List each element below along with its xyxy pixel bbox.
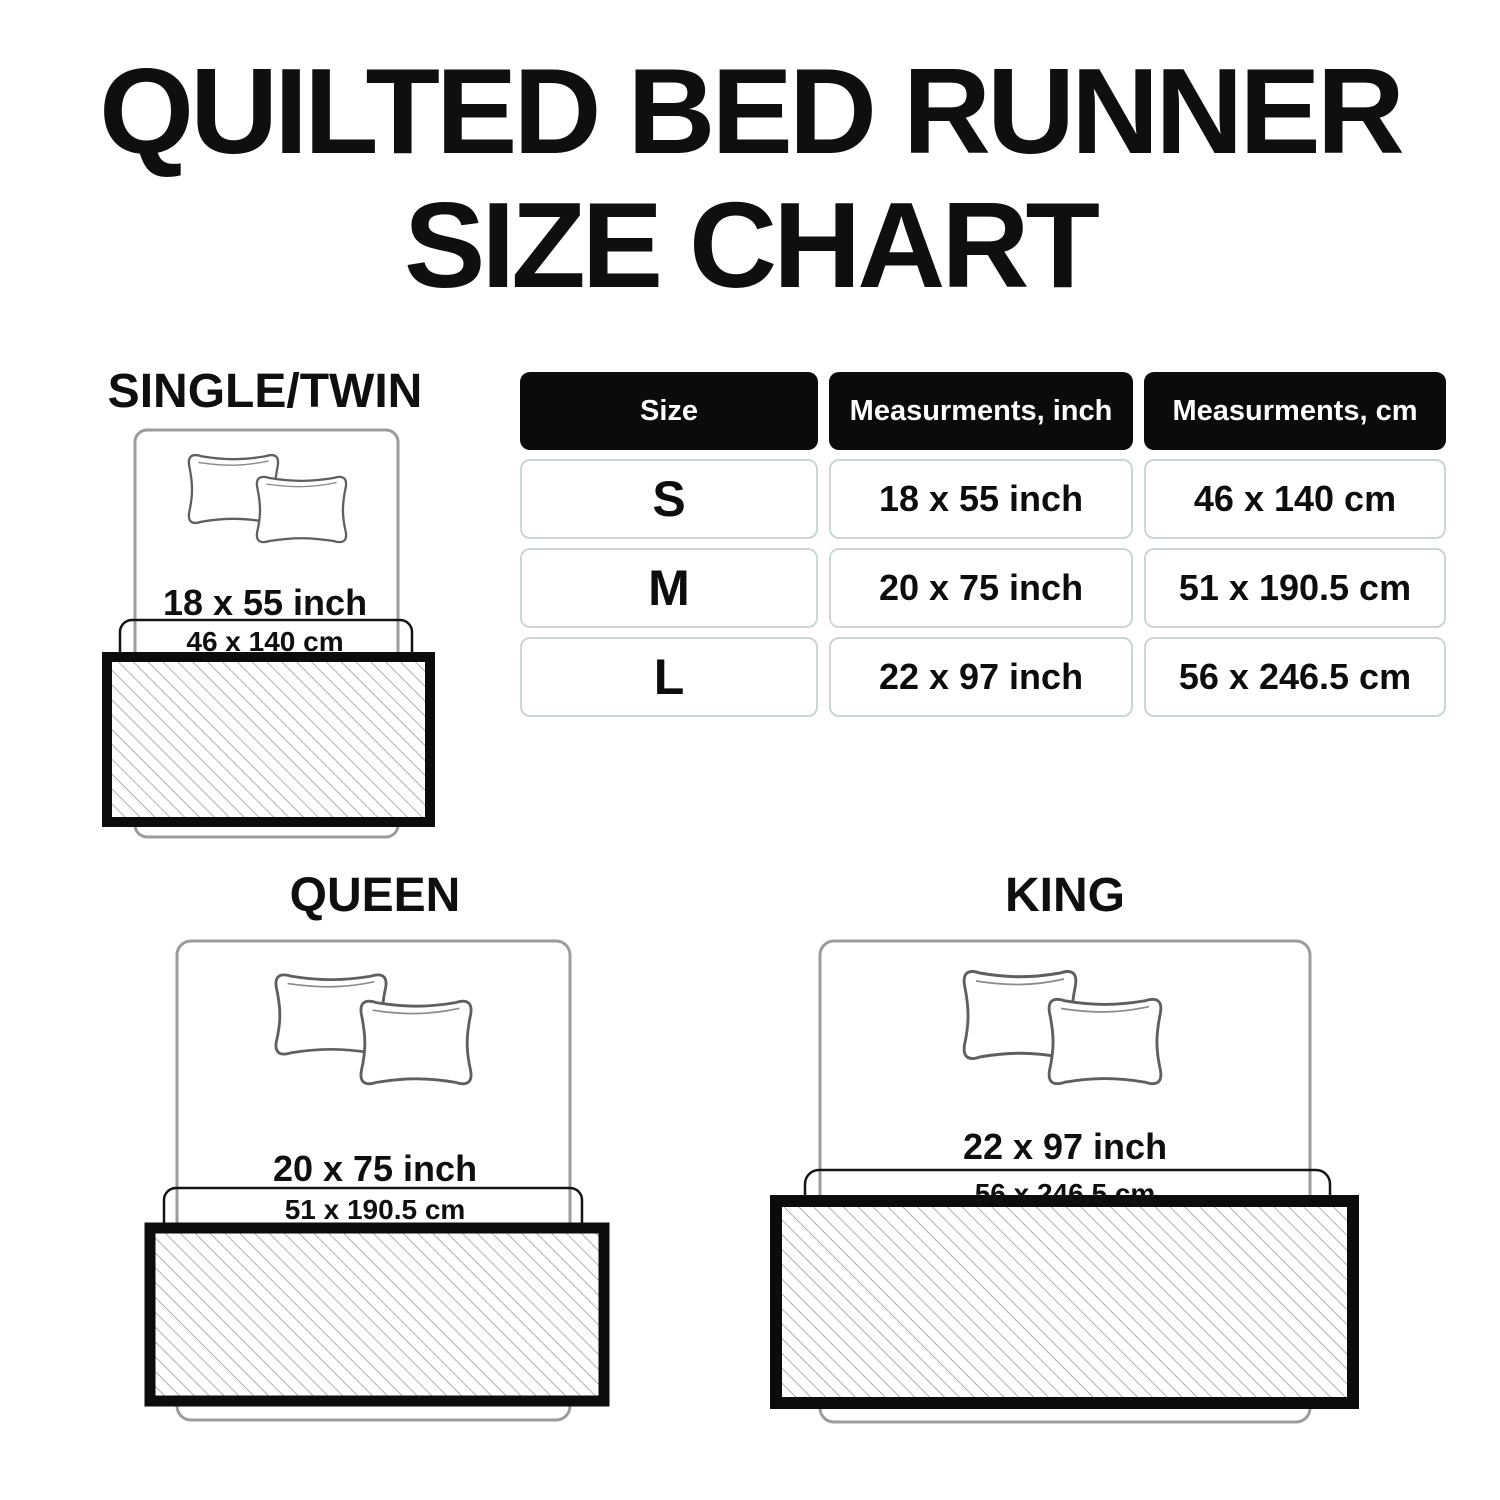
cm-cell: 46 x 140 cm [1144, 459, 1446, 539]
size-cell: S [520, 459, 818, 539]
queen-size-cm: 51 x 190.5 cm [135, 1194, 615, 1226]
size-cell: L [520, 637, 818, 717]
queen-size-inch: 20 x 75 inch [135, 1148, 615, 1190]
single-twin-runner-swatch [107, 657, 430, 822]
pillow-icon [257, 477, 346, 542]
cm-cell: 56 x 246.5 cm [1144, 637, 1446, 717]
inch-cell: 22 x 97 inch [829, 637, 1133, 717]
king-size-inch: 22 x 97 inch [765, 1126, 1365, 1168]
page-title-line2: SIZE CHART [0, 178, 1500, 312]
inch-cell: 20 x 75 inch [829, 548, 1133, 628]
pillow-icon [1049, 999, 1161, 1083]
pillow-icon [361, 1001, 471, 1084]
table-header-inch: Measurments, inch [829, 372, 1133, 450]
queen-runner-swatch [150, 1228, 604, 1401]
single-twin-size-cm: 46 x 140 cm [85, 626, 445, 658]
quilted-bed-runner-size-chart: { "title": { "line1": "QUILTED BED RUNNE… [0, 0, 1500, 1500]
table-header-cm: Measurments, cm [1144, 372, 1446, 450]
inch-cell: 18 x 55 inch [829, 459, 1133, 539]
king-runner-swatch [776, 1201, 1353, 1403]
single-twin-label: SINGLE/TWIN [85, 364, 445, 419]
page-title-line1: QUILTED BED RUNNER [0, 44, 1500, 178]
size-cell: M [520, 548, 818, 628]
page-title: QUILTED BED RUNNER SIZE CHART [0, 44, 1500, 312]
cm-cell: 51 x 190.5 cm [1144, 548, 1446, 628]
queen-label: QUEEN [135, 868, 615, 923]
table-header-size: Size [520, 372, 818, 450]
single-twin-size-inch: 18 x 55 inch [85, 582, 445, 624]
king-label: KING [765, 868, 1365, 923]
king-size-cm: 56 x 246.5 cm [765, 1178, 1365, 1210]
size-table: Size Measurments, inch Measurments, cm S… [520, 372, 1446, 717]
